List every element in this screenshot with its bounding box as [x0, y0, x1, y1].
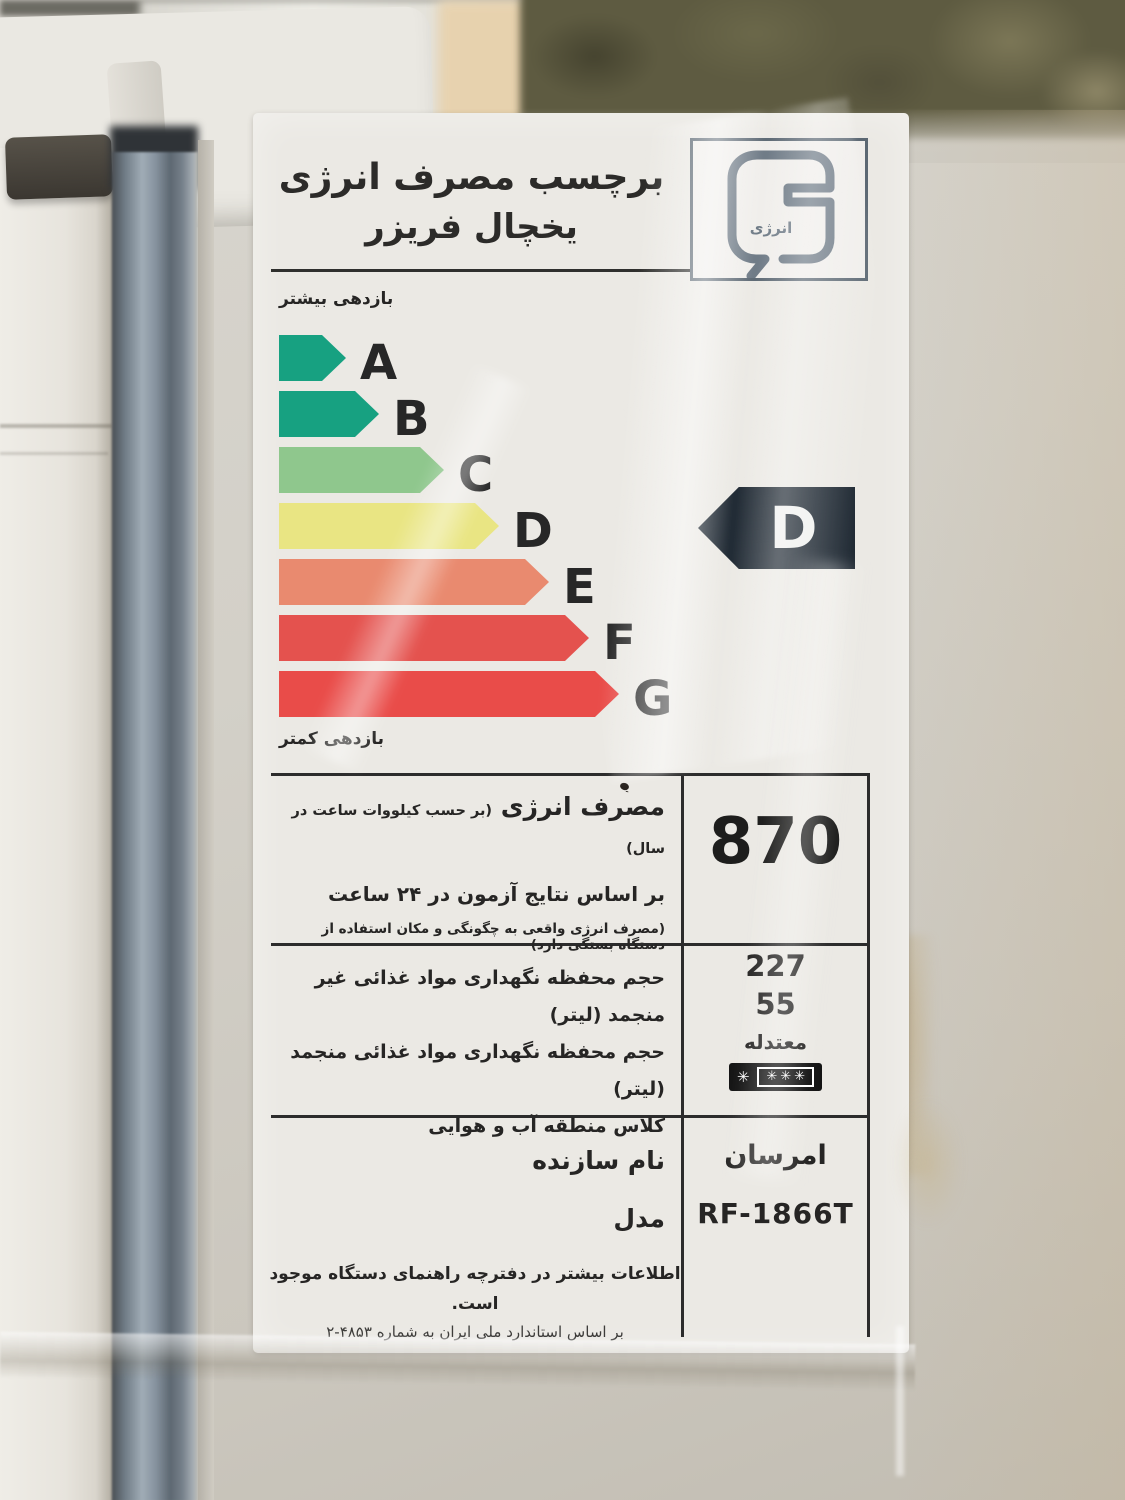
- specs-labels: حجم محفظه نگهداری مواد غذائی غیر منجمد (…: [271, 946, 681, 1145]
- grade-row-d: D: [279, 503, 672, 549]
- grade-bar-f: [279, 615, 589, 661]
- energy-consumption-section: مصرف انرژی (بر حسب کیلووات ساعت در سال) …: [271, 773, 867, 943]
- grade-bar-g: [279, 671, 619, 717]
- door-edge: [198, 140, 214, 1500]
- energy-logo-text: انرژی: [750, 219, 793, 237]
- spec-frozen-volume-label: حجم محفظه نگهداری مواد غذائی منجمد (لیتر…: [279, 1034, 665, 1108]
- grade-letter-d: D: [513, 508, 553, 554]
- grade-row-g: G: [279, 671, 672, 717]
- rating-arrow: D: [698, 487, 855, 569]
- fridge-door-photo: برچسب مصرف انرژی یخچال فریزر انرژی بازده…: [0, 0, 1125, 1500]
- door-gasket: [112, 152, 198, 1500]
- panel-seam-line: [0, 424, 112, 428]
- energy-test-basis: بر اساس نتایج آزمون در ۲۴ ساعت: [279, 882, 665, 906]
- label-title-line1: برچسب مصرف انرژی: [253, 153, 690, 203]
- title-divider-line: [271, 269, 690, 272]
- efficiency-more-label: بازدهی بیشتر: [279, 289, 393, 309]
- label-title-line2: یخچال فریزر: [253, 203, 690, 251]
- energy-value-cell: 870: [681, 776, 867, 953]
- maker-values: امرسان RF-1866T: [681, 1118, 867, 1337]
- grade-letter-g: G: [633, 676, 672, 722]
- footnote-line1: اطلاعات بیشتر در دفترچه راهنمای دستگاه م…: [263, 1259, 687, 1319]
- specs-values: 227 55 معتدله ✳ ✳✳✳: [681, 946, 867, 1145]
- grade-letter-e: E: [563, 564, 596, 610]
- efficiency-less-label: بازدهی کمتر: [279, 729, 384, 749]
- energy-value: 870: [709, 810, 843, 874]
- spec-climate-class-value: معتدله: [744, 1030, 807, 1054]
- grade-letter-c: C: [458, 452, 493, 498]
- label-title: برچسب مصرف انرژی یخچال فریزر: [253, 153, 690, 251]
- maker-name-value: امرسان: [724, 1140, 827, 1171]
- energy-logo-box: انرژی: [690, 138, 868, 281]
- grade-bar-a: [279, 335, 346, 381]
- grade-letter-a: A: [360, 340, 397, 386]
- spec-frozen-volume-value: 55: [755, 986, 795, 1022]
- grade-letter-b: B: [393, 396, 430, 442]
- grade-row-e: E: [279, 559, 672, 605]
- info-table: مصرف انرژی (بر حسب کیلووات ساعت در سال) …: [271, 773, 870, 1337]
- tape-edge: [896, 1326, 904, 1476]
- grade-bar-e: [279, 559, 549, 605]
- energy-label: برچسب مصرف انرژی یخچال فریزر انرژی بازده…: [253, 113, 909, 1353]
- specs-section: حجم محفظه نگهداری مواد غذائی غیر منجمد (…: [271, 943, 867, 1115]
- panel-seam-line: [0, 452, 108, 455]
- energy-consumption-text: مصرف انرژی (بر حسب کیلووات ساعت در سال) …: [271, 776, 681, 953]
- freezer-star-rating: ✳ ✳✳✳: [729, 1063, 822, 1091]
- door-right-shading: [895, 110, 1125, 1500]
- model-label: مدل: [279, 1204, 665, 1234]
- efficiency-scale: A B C D E F G: [279, 335, 672, 727]
- grade-row-b: B: [279, 391, 672, 437]
- energy-heading-bold: مصرف انرژی: [501, 792, 665, 821]
- grade-row-c: C: [279, 447, 672, 493]
- grade-letter-f: F: [603, 620, 636, 666]
- left-door-panel: [0, 148, 114, 1500]
- model-value: RF-1866T: [697, 1197, 853, 1230]
- maker-name-label: نام سازنده: [279, 1146, 665, 1176]
- spec-fresh-volume-label: حجم محفظه نگهداری مواد غذائی غیر منجمد (…: [279, 960, 665, 1034]
- door-hinge: [5, 134, 113, 200]
- footnote: اطلاعات بیشتر در دفترچه راهنمای دستگاه م…: [263, 1259, 687, 1345]
- energy-heading: مصرف انرژی (بر حسب کیلووات ساعت در سال): [279, 790, 665, 866]
- grade-row-f: F: [279, 615, 672, 661]
- spec-fresh-volume-value: 227: [745, 948, 806, 984]
- three-stars-icon: ✳✳✳: [757, 1067, 814, 1087]
- star-icon: ✳: [737, 1070, 750, 1085]
- grade-bar-c: [279, 447, 444, 493]
- grade-bar-b: [279, 391, 379, 437]
- grade-row-a: A: [279, 335, 672, 381]
- energy-logo-icon: انرژی: [693, 141, 865, 278]
- grade-bar-d: [279, 503, 499, 549]
